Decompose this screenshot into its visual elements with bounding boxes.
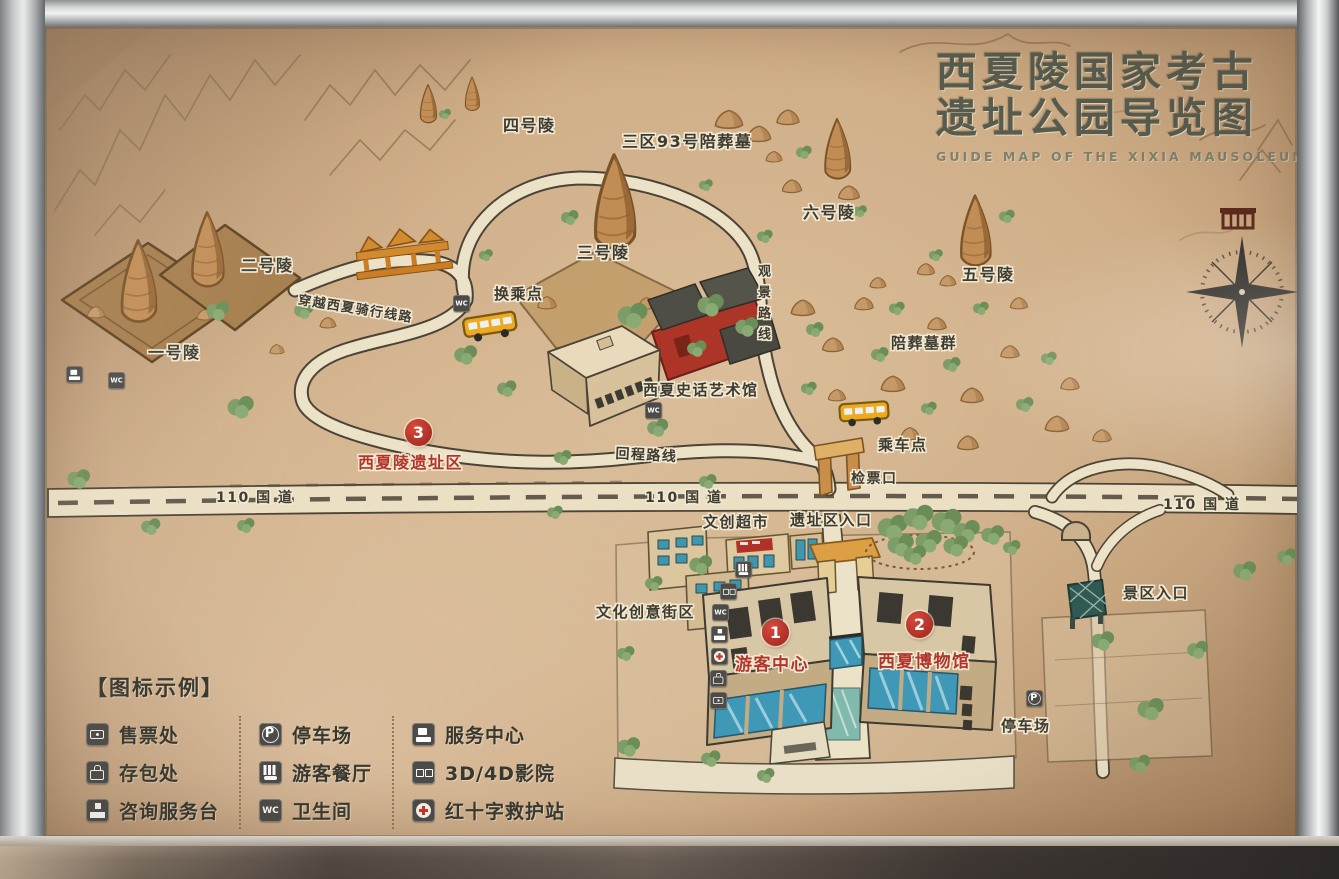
legend-column-2: 停车场游客餐厅卫生间 xyxy=(239,716,392,829)
frame-right xyxy=(1297,0,1339,879)
map-label-highway-110-center: 110 国 道 xyxy=(645,487,722,507)
toilet-icon xyxy=(453,295,470,312)
first-aid-icon xyxy=(711,648,728,665)
marker-3: 3 xyxy=(405,419,432,446)
first-aid-icon xyxy=(412,799,435,822)
map-label-site-area: 西夏陵遗址区 xyxy=(358,449,463,473)
map-label-tomb-5: 五号陵 xyxy=(962,261,1015,285)
map-label-highway-110-left: 110 国 道 xyxy=(216,487,293,507)
map-label-ticket-gate: 检票口 xyxy=(851,468,898,488)
legend-label: 服务中心 xyxy=(445,721,525,748)
map-label-transfer-point: 换乘点 xyxy=(494,283,544,304)
legend-header: 【图标示例】 xyxy=(86,672,585,702)
legend-label: 存包处 xyxy=(119,759,179,786)
cinema-icon xyxy=(720,583,737,600)
luggage-storage-icon xyxy=(86,761,109,784)
legend-item-information-desk: 咨询服务台 xyxy=(86,792,219,829)
luggage-storage-icon xyxy=(710,670,727,687)
map-label-parking-lot: 停车场 xyxy=(1001,715,1051,736)
map-label-highway-110-right: 110 国 道 xyxy=(1163,494,1240,514)
toilet-icon xyxy=(108,372,125,389)
title-subtitle: GUIDE MAP OF THE XIXIA MAUSOLEUM xyxy=(936,149,1308,164)
legend-item-ticket-office: 售票处 xyxy=(86,716,219,753)
map-label-cultural-market: 文创超市 xyxy=(703,511,769,532)
legend-grid: 售票处存包处咨询服务台停车场游客餐厅卫生间服务中心3D/4D影院红十字救护站 xyxy=(86,716,585,829)
frame-top xyxy=(0,0,1339,27)
map-label-tomb-6: 六号陵 xyxy=(803,199,856,223)
legend-item-luggage-storage: 存包处 xyxy=(86,754,219,791)
map-label-tomb-3: 三号陵 xyxy=(577,239,630,263)
legend-label: 红十字救护站 xyxy=(445,797,565,824)
legend-label: 卫生间 xyxy=(292,797,352,824)
map-label-return-route: 回程路线 xyxy=(615,443,678,466)
service-center-icon xyxy=(412,723,435,746)
map-title: 西夏陵国家考古 遗址公园导览图 GUIDE MAP OF THE XIXIA M… xyxy=(936,50,1308,164)
legend-item-toilet: 卫生间 xyxy=(259,792,372,829)
legend-item-service-center: 服务中心 xyxy=(412,716,565,753)
toilet-icon xyxy=(645,402,662,419)
map-label-tomb-cluster: 陪葬墓群 xyxy=(891,332,957,353)
map-label-art-museum: 西夏史话艺术馆 xyxy=(643,379,759,400)
marker-2: 2 xyxy=(906,611,933,638)
framed-guide-map-photo: 西夏陵国家考古 遗址公园导览图 GUIDE MAP OF THE XIXIA M… xyxy=(0,0,1339,879)
map-label-creative-block: 文化创意街区 xyxy=(596,601,695,622)
map-label-tomb-1: 一号陵 xyxy=(148,339,201,363)
frame-bottom xyxy=(0,836,1339,879)
information-desk-icon xyxy=(711,626,728,643)
map-label-tomb-93: 三区93号陪葬墓 xyxy=(622,128,752,152)
map-overlay: 西夏陵国家考古 遗址公园导览图 GUIDE MAP OF THE XIXIA M… xyxy=(0,0,1339,879)
toilet-icon xyxy=(712,604,729,621)
parking-icon xyxy=(1026,690,1043,707)
map-label-site-entrance: 遗址区入口 xyxy=(790,509,873,530)
legend-label: 停车场 xyxy=(292,721,352,748)
map-label-scenic-route: 观景路线 xyxy=(753,264,772,348)
map-label-boarding-point: 乘车点 xyxy=(878,434,928,455)
map-label-scenic-entrance: 景区入口 xyxy=(1123,582,1189,603)
toilet-icon xyxy=(259,799,282,822)
cinema-icon xyxy=(412,761,435,784)
map-label-cycling-route: 穿越西夏骑行线路 xyxy=(297,289,415,326)
service-center-icon xyxy=(66,366,83,383)
legend-column-3: 服务中心3D/4D影院红十字救护站 xyxy=(392,716,585,829)
legend: 【图标示例】 售票处存包处咨询服务台停车场游客餐厅卫生间服务中心3D/4D影院红… xyxy=(86,672,585,829)
restaurant-icon xyxy=(735,561,752,578)
title-line1: 西夏陵国家考古 xyxy=(936,50,1308,96)
marker-1: 1 xyxy=(762,619,789,646)
restaurant-icon xyxy=(259,761,282,784)
parking-icon xyxy=(259,723,282,746)
legend-item-first-aid: 红十字救护站 xyxy=(412,792,565,829)
legend-item-parking: 停车场 xyxy=(259,716,372,753)
legend-item-restaurant: 游客餐厅 xyxy=(259,754,372,791)
map-label-tomb-4: 四号陵 xyxy=(503,112,556,136)
map-label-xixia-museum: 西夏博物馆 xyxy=(878,647,971,672)
ticket-office-icon xyxy=(710,692,727,709)
legend-label: 游客餐厅 xyxy=(292,759,372,786)
information-desk-icon xyxy=(86,799,109,822)
legend-column-1: 售票处存包处咨询服务台 xyxy=(86,716,239,829)
legend-item-cinema: 3D/4D影院 xyxy=(412,754,565,791)
title-line2: 遗址公园导览图 xyxy=(936,96,1308,142)
map-label-tomb-2: 二号陵 xyxy=(241,252,294,276)
legend-label: 3D/4D影院 xyxy=(445,759,555,786)
ticket-office-icon xyxy=(86,723,109,746)
map-label-visitor-center: 游客中心 xyxy=(735,650,809,675)
legend-label: 咨询服务台 xyxy=(119,797,219,824)
legend-label: 售票处 xyxy=(119,721,179,748)
frame-left xyxy=(0,0,45,879)
